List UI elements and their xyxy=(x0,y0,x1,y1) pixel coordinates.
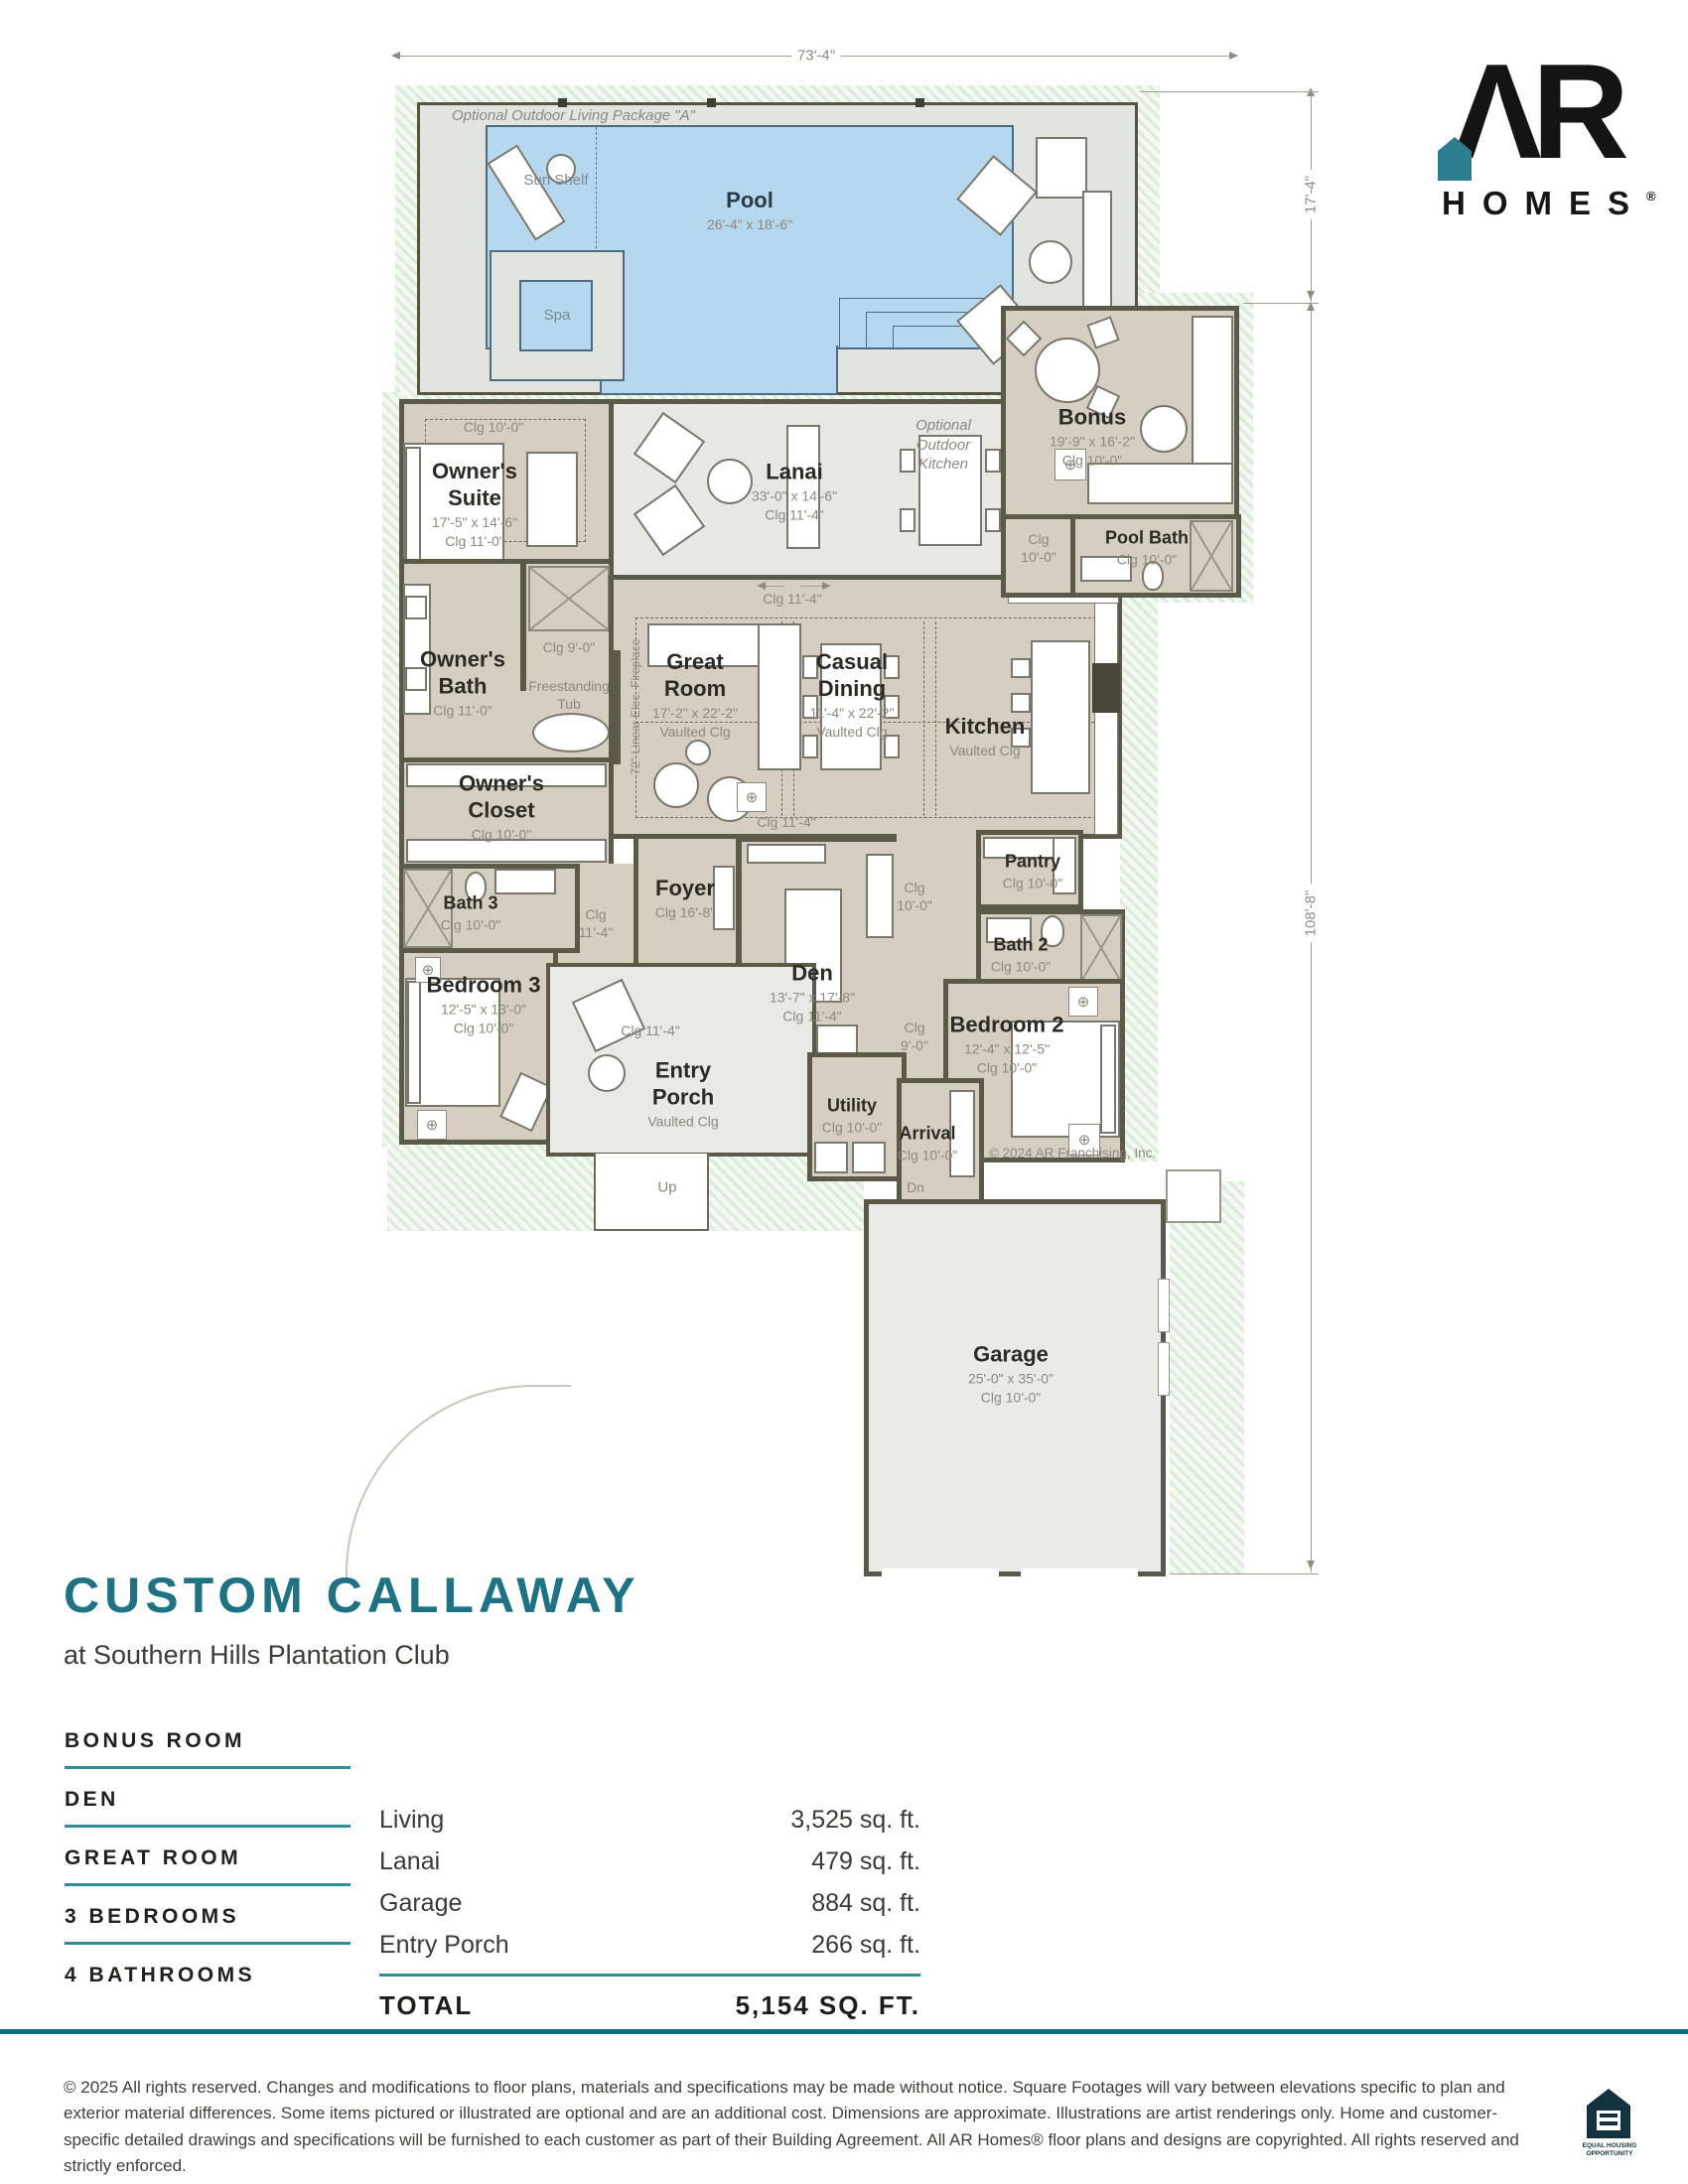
room-label-bedroom-3: Bedroom 3 12'-5" x 13'-0" Clg 10'-0" xyxy=(404,973,563,1037)
ceiling-fan-icon: ⊕ xyxy=(737,782,767,812)
den-cabinet xyxy=(747,844,826,864)
area-value: 479 sq. ft. xyxy=(811,1847,920,1876)
room-name: Foyer xyxy=(635,876,735,902)
room-dims: 17'-5" x 14'-6" xyxy=(413,514,537,531)
room-dims: 17'-2" x 22'-2" xyxy=(635,705,755,722)
room-label-den: Den 13'-7" x 17'-8" Clg 11'-4" xyxy=(743,961,882,1025)
footer-disclaimer: © 2025 All rights reserved. Changes and … xyxy=(64,2075,1543,2179)
room-dims: 13'-7" x 17'-8" xyxy=(743,989,882,1006)
garage-door-opening xyxy=(1021,1569,1138,1578)
note-dn: Dn xyxy=(896,1178,935,1196)
arrow-right-icon xyxy=(822,582,831,590)
column xyxy=(558,98,567,107)
side-stoop xyxy=(1166,1169,1221,1223)
area-label: Living xyxy=(379,1806,444,1835)
freestanding-tub xyxy=(532,713,610,752)
shower xyxy=(1080,914,1122,982)
room-name: Kitchen xyxy=(930,714,1040,741)
bar-stool xyxy=(1011,658,1031,678)
garage-window xyxy=(1158,1279,1170,1332)
equal-housing-caption: EQUAL HOUSING OPPORTUNITY xyxy=(1577,2142,1642,2158)
note-suite-clg: Clg 10'-0" xyxy=(464,418,524,436)
table-row: Lanai 479 sq. ft. xyxy=(379,1841,920,1882)
room-name: Casual Dining xyxy=(787,649,916,703)
room-clg: Vaulted Clg xyxy=(635,724,755,741)
equal-housing-icon xyxy=(1600,2114,1618,2117)
room-name: Entry Porch xyxy=(624,1058,743,1112)
note-gallery-clg: Clg 11'-4" xyxy=(757,813,816,831)
room-label-lanai: Lanai 33'-0" x 14'-6" Clg 11'-4" xyxy=(710,460,879,524)
room-clg: Clg 11'-4" xyxy=(710,506,879,523)
room-label-foyer: Foyer Clg 16'-8" xyxy=(635,876,735,921)
bonus-table xyxy=(1035,338,1100,403)
room-dims: 25'-0" x 35'-0" xyxy=(921,1370,1100,1387)
table-total-row: TOTAL 5,154 SQ. FT. xyxy=(379,1977,920,2021)
den-cabinet xyxy=(866,854,894,938)
room-clg: Vaulted Clg xyxy=(787,724,916,741)
room-label-entry-porch: Entry Porch Vaulted Clg xyxy=(624,1058,743,1131)
ceiling-fan-icon: ⊕ xyxy=(417,1110,447,1140)
column-line xyxy=(923,621,924,816)
divider xyxy=(65,1825,351,1828)
table-row: Garage 884 sq. ft. xyxy=(379,1882,920,1924)
room-clg: Vaulted Clg xyxy=(930,743,1040,759)
room-name: Bedroom 2 xyxy=(927,1013,1086,1039)
bed-pillows xyxy=(1100,1024,1116,1134)
room-name: Den xyxy=(743,961,882,988)
sink xyxy=(405,596,427,619)
washer xyxy=(814,1142,848,1173)
note-up: Up xyxy=(647,1177,687,1197)
dim-arrow-icon xyxy=(1229,52,1238,60)
room-label-pool-bath: Pool Bath Clg 10'-0" xyxy=(1072,527,1221,568)
room-label-pantry: Pantry Clg 10'-0" xyxy=(978,851,1087,891)
registered-mark: ® xyxy=(1646,189,1656,204)
dimension-ext-line xyxy=(1170,1573,1319,1574)
room-label-bath-3: Bath 3 Clg 10'-0" xyxy=(416,892,525,933)
note-hall-pantry-clg: Clg 10'-0" xyxy=(891,879,938,914)
feature-list: BONUS ROOM DEN GREAT ROOM 3 BEDROOMS 4 B… xyxy=(65,1729,352,2000)
garage-window xyxy=(1158,1342,1170,1396)
dimension-ext-line xyxy=(1243,303,1319,304)
room-dims: 12'-5" x 13'-0" xyxy=(404,1001,563,1018)
equal-housing-icon xyxy=(1600,2121,1618,2125)
note-tub-clg: Clg 9'-0" xyxy=(519,638,619,656)
room-clg: Clg 11'-0" xyxy=(413,533,537,550)
room-name: Arrival xyxy=(878,1123,977,1145)
landscape-hatch xyxy=(1120,591,1158,1161)
room-label-pool: Pool 26'-4" x 18'-6" xyxy=(675,188,824,233)
room-label-spa: Spa xyxy=(527,307,587,325)
landscape-hatch xyxy=(1170,1181,1244,1573)
room-clg: Clg 10'-0" xyxy=(437,826,566,843)
page-title: CUSTOM CALLAWAY xyxy=(64,1567,640,1624)
room-clg: Clg 10'-0" xyxy=(1008,452,1177,469)
room-clg: Clg 10'-0" xyxy=(1072,551,1221,568)
bath-vanity xyxy=(494,869,556,894)
area-value: 884 sq. ft. xyxy=(811,1889,920,1918)
total-value: 5,154 SQ. FT. xyxy=(736,1990,920,2021)
shower xyxy=(528,566,610,631)
area-label: Entry Porch xyxy=(379,1931,509,1960)
room-name: Garage xyxy=(921,1342,1100,1369)
room-name: Bonus xyxy=(1008,405,1177,432)
area-table: Living 3,525 sq. ft. Lanai 479 sq. ft. G… xyxy=(379,1799,920,2021)
dim-arrow-icon xyxy=(1307,1561,1315,1570)
logo-wordmark: HOMES® xyxy=(1442,185,1656,222)
wall xyxy=(520,564,526,691)
dimension-top: 73'-4" xyxy=(791,48,841,65)
dimension-right-upper: 17'-4" xyxy=(1303,170,1320,219)
armchair xyxy=(653,762,699,808)
note-porch-walk-clg: Clg 11'-4" xyxy=(621,1022,680,1039)
room-clg: Clg 10'-0" xyxy=(921,1389,1100,1406)
porch-table xyxy=(588,1054,626,1092)
room-label-bath-2: Bath 2 Clg 10'-0" xyxy=(966,934,1075,975)
divider xyxy=(65,1942,351,1945)
dimension-ext-line xyxy=(1140,91,1319,92)
feature-item: 3 BEDROOMS xyxy=(65,1905,352,1929)
room-label-casual-dining: Casual Dining 11'-4" x 22'-2" Vaulted Cl… xyxy=(787,649,916,741)
room-clg: Clg 16'-8" xyxy=(635,904,735,921)
room-label-owners-closet: Owner's Closet Clg 10'-0" xyxy=(437,771,566,844)
area-label: Garage xyxy=(379,1889,462,1918)
feature-item: BONUS ROOM xyxy=(65,1729,352,1753)
note-outdoor-kitchen: Optional Outdoor Kitchen xyxy=(898,416,989,475)
arrow-left-icon xyxy=(757,582,766,590)
ar-monogram-icon: ΛR xyxy=(1452,44,1619,179)
room-name: Utility xyxy=(802,1095,902,1117)
room-label-owners-suite: Owner's Suite 17'-5" x 14'-6" Clg 11'-0" xyxy=(413,459,537,550)
room-label-bonus: Bonus 19'-9" x 16'-2" Clg 10'-0" xyxy=(1008,405,1177,470)
room-label-bedroom-2: Bedroom 2 12'-4" x 12'-5" Clg 10'-0" xyxy=(927,1013,1086,1077)
room-name: Pool xyxy=(675,188,824,214)
room-label-kitchen: Kitchen Vaulted Clg xyxy=(930,714,1040,759)
kitchen-island xyxy=(1031,640,1090,794)
room-clg: Clg 10'-0" xyxy=(966,958,1075,975)
bar-stool xyxy=(1011,693,1031,713)
room-clg: Clg 11'-0" xyxy=(406,702,520,719)
divider xyxy=(0,2029,1688,2034)
room-clg: Clg 11'-4" xyxy=(743,1008,882,1024)
deck-table xyxy=(1029,240,1072,284)
area-value: 266 sq. ft. xyxy=(811,1931,920,1960)
room-dims: 19'-9" x 16'-2" xyxy=(1008,433,1177,450)
room-clg: Vaulted Clg xyxy=(624,1113,743,1130)
area-label: Lanai xyxy=(379,1847,440,1876)
pool-water xyxy=(600,345,838,395)
feature-item: DEN xyxy=(65,1788,352,1812)
note-hall-foyer-clg: Clg 11'-4" xyxy=(572,905,620,941)
room-name: Bedroom 3 xyxy=(404,973,563,1000)
table-row: Living 3,525 sq. ft. xyxy=(379,1799,920,1841)
feature-item: 4 BATHROOMS xyxy=(65,1964,352,1987)
plan-copyright: © 2024 AR Franchising, Inc. xyxy=(958,1145,1187,1162)
room-clg: Clg 10'-0" xyxy=(978,875,1087,891)
room-dims: 33'-0" x 14'-6" xyxy=(710,487,879,504)
side-table xyxy=(685,740,711,765)
package-label: Optional Outdoor Living Package "A" xyxy=(452,107,695,124)
lanai-dining-chair xyxy=(985,508,1001,532)
garage-door-opening xyxy=(882,1569,999,1578)
area-value: 3,525 sq. ft. xyxy=(790,1806,920,1835)
walkway-edge xyxy=(346,1385,571,1580)
divider xyxy=(65,1883,351,1886)
range xyxy=(1092,663,1120,713)
room-name: Owner's Closet xyxy=(437,771,566,825)
column xyxy=(707,98,716,107)
dimension-right-lower: 108'-8" xyxy=(1303,885,1320,943)
room-label-owners-bath: Owner's Bath Clg 11'-0" xyxy=(406,647,520,720)
arrow-line xyxy=(800,586,822,587)
room-dims: 12'-4" x 12'-5" xyxy=(927,1040,1086,1057)
floor-plan-sheet: { "brand": {"monogram": "ΛR", "word": "H… xyxy=(0,0,1688,2184)
room-name: Great Room xyxy=(635,649,755,703)
room-label-garage: Garage 25'-0" x 35'-0" Clg 10'-0" xyxy=(921,1342,1100,1407)
deck-chair xyxy=(1036,137,1087,199)
room-name: Lanai xyxy=(710,460,879,486)
logo-word-text: HOMES xyxy=(1442,185,1646,221)
column xyxy=(915,98,924,107)
total-label: TOTAL xyxy=(379,1990,473,2021)
dim-arrow-icon xyxy=(391,52,400,60)
room-name: Pantry xyxy=(978,851,1087,873)
room-clg: Clg 10'-0" xyxy=(404,1020,563,1036)
room-name: Bath 2 xyxy=(966,934,1075,956)
room-name: Pool Bath xyxy=(1072,527,1221,549)
feature-item: GREAT ROOM xyxy=(65,1846,352,1870)
room-dims: 26'-4" x 18'-6" xyxy=(675,216,824,233)
room-label-great-room: Great Room 17'-2" x 22'-2" Vaulted Clg xyxy=(635,649,755,741)
room-clg: Clg 10'-0" xyxy=(416,916,525,933)
lanai-dining-chair xyxy=(900,508,915,532)
page-subtitle: at Southern Hills Plantation Club xyxy=(64,1640,450,1671)
divider xyxy=(65,1766,351,1769)
room-name: Owner's Suite xyxy=(413,459,537,512)
note-tub: Freestanding Tub xyxy=(519,677,619,713)
table-row: Entry Porch 266 sq. ft. xyxy=(379,1924,920,1966)
room-label-sun-shelf: Sun Shelf xyxy=(521,172,591,190)
arrow-line xyxy=(763,586,784,587)
room-name: Owner's Bath xyxy=(406,647,520,701)
note-bonus-hall-clg: Clg 10'-0" xyxy=(1014,530,1063,566)
dim-arrow-icon xyxy=(1307,291,1315,300)
note-walkway-clg: Clg 11'-4" xyxy=(763,590,822,608)
room-clg: Clg 10'-0" xyxy=(927,1059,1086,1076)
room-dims: 11'-4" x 22'-2" xyxy=(787,705,916,722)
room-name: Bath 3 xyxy=(416,892,525,914)
